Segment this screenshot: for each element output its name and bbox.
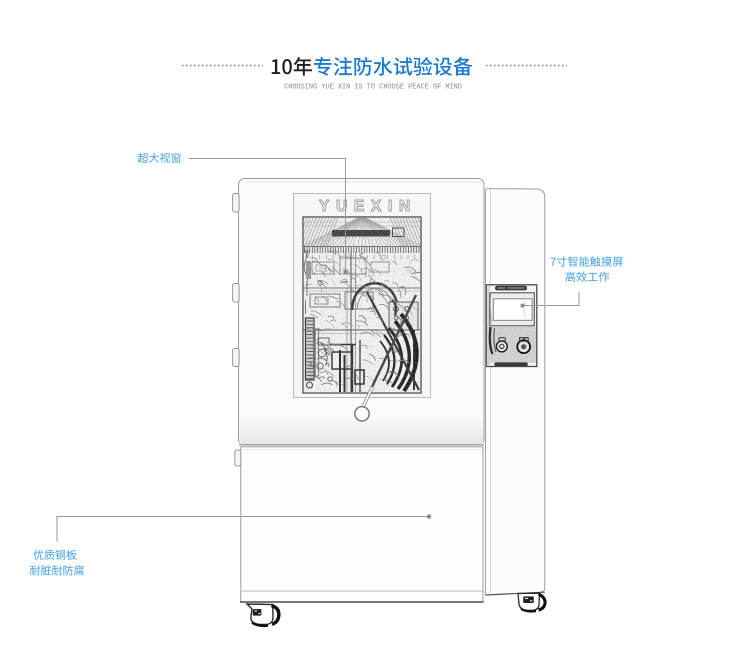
svg-text:YUEXIN: YUEXIN <box>319 198 417 215</box>
svg-text:CHOOSING YUE XIN IS TO CHOOSE: CHOOSING YUE XIN IS TO CHOOSE PEACE OF M… <box>284 83 462 91</box>
